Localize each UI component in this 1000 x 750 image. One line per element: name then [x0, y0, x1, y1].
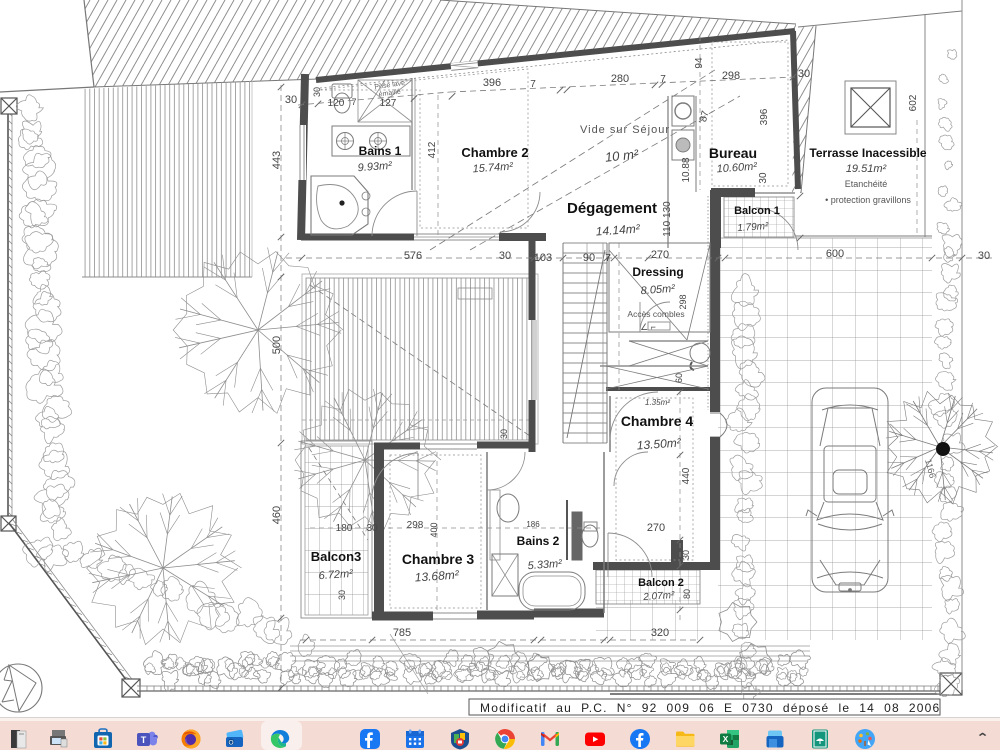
svg-text:Chambre 3: Chambre 3	[402, 551, 475, 567]
svg-text:6.72m²: 6.72m²	[318, 568, 353, 582]
svg-text:• protection gravillons: • protection gravillons	[825, 195, 911, 205]
svg-text:7: 7	[530, 79, 536, 90]
svg-text:440: 440	[681, 467, 692, 484]
svg-text:80: 80	[682, 589, 692, 599]
svg-text:30: 30	[758, 172, 769, 184]
svg-text:298: 298	[678, 294, 688, 309]
svg-text:576: 576	[404, 250, 422, 262]
svg-text:120: 120	[328, 98, 345, 109]
svg-text:94: 94	[694, 57, 705, 69]
svg-text:30: 30	[366, 523, 378, 534]
svg-text:90: 90	[583, 252, 595, 264]
svg-text:500: 500	[271, 336, 283, 354]
svg-text:103: 103	[534, 252, 552, 264]
svg-text:8.05m²: 8.05m²	[640, 283, 675, 297]
svg-text:10.60m²: 10.60m²	[716, 161, 757, 176]
svg-text:460: 460	[271, 506, 283, 524]
svg-text:7: 7	[605, 253, 611, 264]
svg-text:30: 30	[681, 550, 691, 560]
svg-text:10 m²: 10 m²	[604, 146, 639, 164]
svg-text:Dressing: Dressing	[632, 265, 683, 279]
svg-text:110 130: 110 130	[662, 201, 673, 237]
svg-text:2.07m²: 2.07m²	[642, 590, 675, 603]
svg-text:Balcon3: Balcon3	[311, 549, 362, 564]
svg-text:Balcon 2: Balcon 2	[638, 577, 684, 589]
svg-text:14.14m²: 14.14m²	[595, 221, 641, 238]
svg-text:127: 127	[380, 98, 397, 109]
svg-text:298: 298	[722, 70, 740, 82]
svg-text:O: O	[228, 740, 233, 747]
svg-text:270: 270	[647, 522, 665, 534]
svg-text:30: 30	[978, 250, 990, 262]
svg-text:600: 600	[826, 248, 844, 260]
svg-text:785: 785	[393, 627, 411, 639]
svg-text:298: 298	[407, 520, 424, 531]
svg-text:1.35m²: 1.35m²	[645, 398, 670, 407]
svg-text:320: 320	[651, 627, 669, 639]
svg-text:7: 7	[351, 97, 356, 107]
svg-text:602: 602	[908, 94, 919, 111]
svg-text:15.74m²: 15.74m²	[472, 161, 513, 176]
svg-text:30: 30	[285, 94, 297, 106]
svg-text:30: 30	[798, 68, 810, 80]
svg-text:∠ ⌐: ∠ ⌐	[640, 322, 656, 332]
svg-text:30: 30	[312, 87, 322, 97]
svg-text:Chambre 4: Chambre 4	[621, 413, 694, 429]
svg-text:280: 280	[611, 73, 629, 85]
svg-text:Modificatif au P.C. N° 92: Modificatif au P.C. N° 92 009 06 E 0730 …	[480, 701, 940, 715]
svg-text:400: 400	[429, 522, 439, 537]
svg-text:Chambre 2: Chambre 2	[461, 145, 528, 160]
svg-text:Terrasse Inacessible: Terrasse Inacessible	[809, 146, 927, 160]
svg-text:10.88: 10.88	[681, 157, 692, 182]
svg-text:60: 60	[674, 373, 684, 383]
svg-text:Bains 2: Bains 2	[517, 534, 560, 548]
svg-text:396: 396	[759, 108, 770, 125]
svg-text:5.33m²: 5.33m²	[527, 558, 562, 572]
svg-text:Vide sur Séjour: Vide sur Séjour	[580, 124, 670, 136]
svg-text:X: X	[723, 734, 729, 744]
svg-text:Balcon 1: Balcon 1	[734, 205, 780, 217]
svg-text:Bureau: Bureau	[709, 145, 757, 161]
svg-text:Accès combles: Accès combles	[627, 309, 684, 319]
svg-text:180: 180	[336, 523, 353, 534]
svg-text:396: 396	[483, 77, 501, 89]
svg-text:443: 443	[271, 151, 283, 169]
svg-text:186: 186	[526, 520, 540, 529]
svg-text:30: 30	[337, 590, 347, 600]
svg-text:Dégagement: Dégagement	[567, 200, 657, 217]
svg-text:9.93m²: 9.93m²	[357, 160, 392, 174]
svg-text:7: 7	[660, 74, 666, 85]
svg-text:19.51m²: 19.51m²	[846, 163, 887, 175]
svg-text:T: T	[141, 735, 147, 745]
svg-text:270: 270	[651, 249, 669, 261]
svg-text:Etanchéité: Etanchéité	[845, 179, 888, 189]
svg-text:1.79m²: 1.79m²	[737, 221, 769, 234]
svg-text:'87: '87	[698, 109, 712, 125]
svg-text:30: 30	[499, 250, 511, 262]
svg-text:412: 412	[427, 141, 438, 158]
svg-text:13.50m²: 13.50m²	[636, 435, 682, 452]
svg-text:30: 30	[499, 429, 509, 439]
svg-text:13.68m²: 13.68m²	[414, 567, 460, 584]
svg-text:Bains 1: Bains 1	[359, 144, 402, 158]
